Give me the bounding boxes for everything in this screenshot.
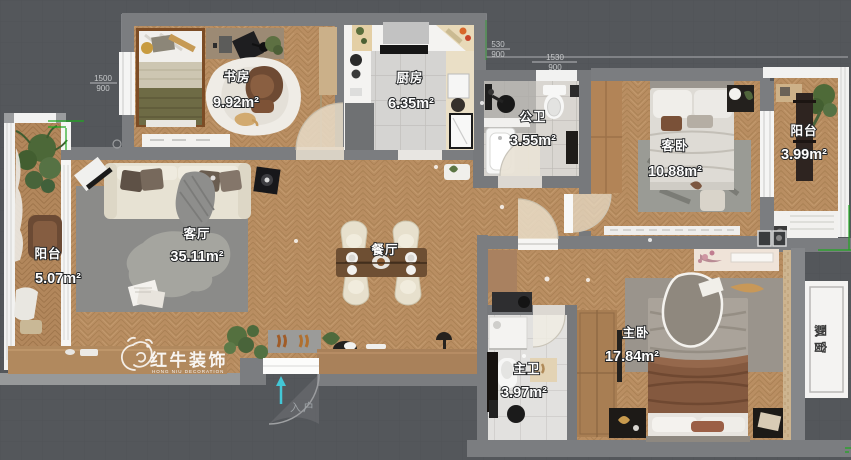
svg-text:入户: 入户	[290, 400, 316, 414]
svg-text:900: 900	[491, 50, 505, 59]
svg-text:530: 530	[491, 40, 505, 49]
svg-text:6.35m²: 6.35m²	[388, 96, 434, 112]
svg-text:900: 900	[548, 63, 562, 72]
svg-text:客厅: 客厅	[182, 226, 210, 241]
svg-text:1500: 1500	[94, 74, 112, 83]
svg-text:3.99m²: 3.99m²	[781, 147, 827, 163]
svg-text:主卧: 主卧	[622, 325, 649, 340]
svg-text:9.92m²: 9.92m²	[213, 95, 259, 111]
svg-text:1530: 1530	[546, 53, 564, 62]
svg-text:17.84m²: 17.84m²	[605, 349, 659, 365]
svg-text:客卧: 客卧	[660, 138, 688, 153]
svg-text:900: 900	[96, 84, 110, 93]
svg-text:5.07m²: 5.07m²	[35, 271, 81, 287]
svg-text:厨房: 厨房	[396, 70, 423, 85]
svg-text:公卫: 公卫	[519, 110, 546, 124]
svg-text:3.97m²: 3.97m²	[501, 385, 547, 401]
svg-text:飘窗: 飘窗	[813, 324, 828, 357]
svg-text:阳台: 阳台	[790, 123, 817, 138]
svg-text:35.11m²: 35.11m²	[170, 249, 223, 265]
svg-text:主卫: 主卫	[513, 361, 540, 376]
svg-text:10.88m²: 10.88m²	[648, 164, 702, 180]
svg-text:HONG NIU DECORATION: HONG NIU DECORATION	[152, 369, 224, 374]
svg-text:红牛装饰: 红牛装饰	[150, 350, 228, 370]
svg-text:餐厅: 餐厅	[370, 242, 398, 257]
svg-text:书房: 书房	[223, 69, 250, 84]
svg-text:阳台: 阳台	[34, 246, 61, 261]
svg-text:3.55m²: 3.55m²	[510, 133, 556, 149]
